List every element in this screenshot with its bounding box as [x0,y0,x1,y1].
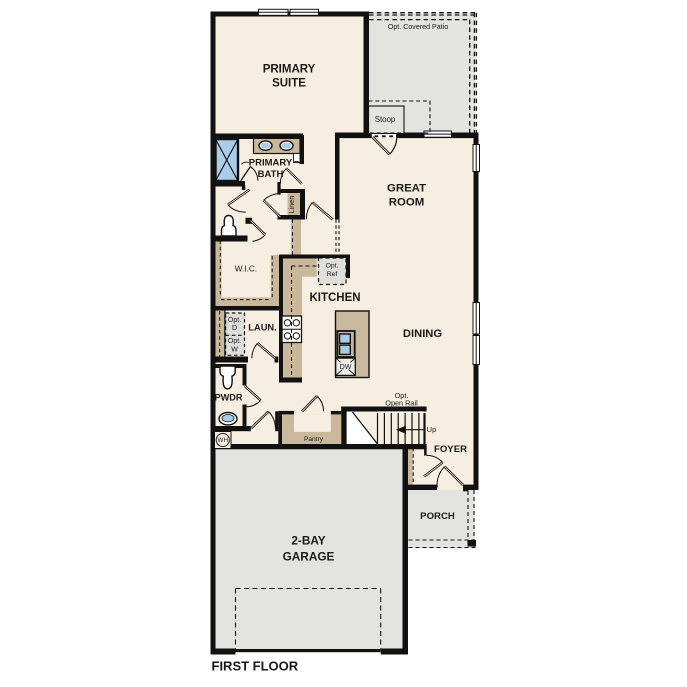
svg-text:SUITE: SUITE [272,78,306,90]
svg-text:Opt. Covered Patio: Opt. Covered Patio [388,23,448,31]
svg-text:PRIMARY: PRIMARY [263,64,316,76]
svg-text:Opt.: Opt. [228,317,241,324]
svg-text:WH: WH [218,437,229,444]
svg-text:D: D [232,325,237,332]
svg-text:DINING: DINING [403,328,442,340]
svg-text:DW: DW [340,364,352,371]
svg-text:Open Rail: Open Rail [385,399,418,408]
svg-text:W.I.C.: W.I.C. [235,265,257,274]
svg-text:LAUN.: LAUN. [248,322,276,332]
svg-text:GREAT: GREAT [387,183,426,195]
svg-text:FIRST FLOOR: FIRST FLOOR [212,659,299,674]
svg-text:ROOM: ROOM [389,197,424,209]
svg-text:Stoop: Stoop [375,115,396,124]
svg-text:Up: Up [427,425,436,434]
svg-text:KITCHEN: KITCHEN [309,292,360,304]
svg-text:PRIMARY: PRIMARY [249,158,293,169]
svg-text:W: W [231,347,238,354]
svg-text:Ref: Ref [327,271,338,278]
svg-text:FOYER: FOYER [434,444,467,455]
svg-text:PWDR: PWDR [214,393,242,403]
svg-text:GARAGE: GARAGE [283,550,335,564]
svg-text:PORCH: PORCH [420,511,455,522]
svg-text:Opt.: Opt. [228,338,241,345]
svg-text:2-BAY: 2-BAY [291,534,325,548]
svg-text:Opt.: Opt. [326,263,339,270]
svg-text:Linen: Linen [287,196,296,214]
svg-text:BATH: BATH [258,169,284,180]
svg-text:Pantry: Pantry [304,436,324,443]
